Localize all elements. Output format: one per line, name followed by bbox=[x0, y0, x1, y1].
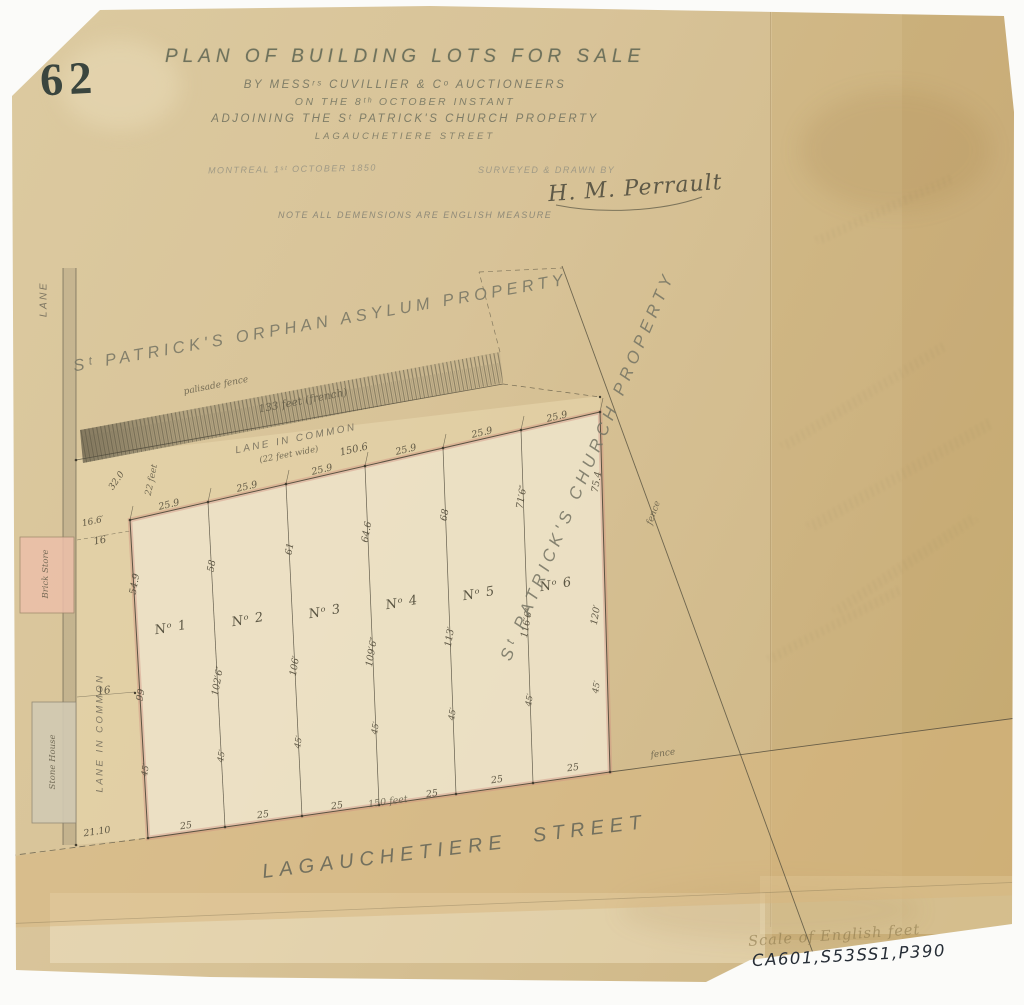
depth-dim: 54.9 bbox=[128, 573, 143, 596]
frontage-dim: 25.9 bbox=[545, 409, 568, 424]
dim-label: 16.6′ bbox=[81, 515, 105, 529]
depth-dim: 45′ bbox=[370, 721, 382, 735]
street-line: LAGAUCHETIERE STREET bbox=[165, 131, 645, 142]
frontage-dim: 25.9 bbox=[235, 479, 258, 494]
depth-dim: 45′ bbox=[447, 707, 459, 721]
lot-number-1: Nᵒ 1 bbox=[154, 618, 189, 638]
auctioneer-line: BY MESSʳˢ CUVILLIER & Cᵒ AUCTIONEERS bbox=[165, 79, 645, 91]
depth-dim: 64.6 bbox=[360, 521, 375, 544]
depth-dim: 45′ bbox=[293, 735, 305, 749]
lot-number-4: Nᵒ 4 bbox=[385, 593, 420, 613]
depth-dim: 109′6″ bbox=[364, 636, 380, 667]
depth-dim: 45′ bbox=[591, 680, 603, 694]
total-top-dim: 150.6 bbox=[339, 441, 369, 458]
depth-dim: 68 bbox=[439, 508, 452, 522]
depth-dim: 120′ bbox=[589, 604, 603, 626]
plan-title: PLAN OF BUILDING LOTS FOR SALE bbox=[165, 46, 645, 68]
fence-label: fence bbox=[650, 747, 676, 760]
lane-label: LANE bbox=[39, 281, 50, 317]
frontage-dim: 25.9 bbox=[157, 497, 180, 512]
lane-in-common-side-label: LANE IN COMMON bbox=[95, 674, 106, 793]
lot-number-5: Nᵒ 5 bbox=[462, 584, 497, 604]
offset-dim: 21.10 bbox=[83, 825, 111, 840]
depth-dim: 106′ bbox=[288, 655, 302, 677]
frontage-dim: 25.9 bbox=[310, 462, 333, 477]
street-frontage-dim: 25 bbox=[256, 809, 270, 822]
page-number: 62 bbox=[39, 51, 100, 107]
depth-dim: 99 bbox=[135, 688, 148, 702]
depth-dim: 45′ bbox=[524, 693, 536, 707]
depth-dim: 102′6″ bbox=[210, 665, 226, 696]
dim-label: 22 feet bbox=[144, 463, 160, 496]
dim-label: 32.0 bbox=[107, 470, 127, 492]
street-frontage-dim: 25 bbox=[425, 788, 439, 801]
frontage-dim: 25.9 bbox=[470, 425, 493, 440]
street-frontage-dim: 25 bbox=[566, 762, 580, 775]
depth-dim: 71′6″ bbox=[515, 484, 530, 509]
street-frontage-dim: 25 bbox=[490, 774, 504, 787]
adjoining-line: ADJOINING THE Sᵗ PATRICK'S CHURCH PROPER… bbox=[165, 113, 645, 125]
date-line: ON THE 8ᵗʰ OCTOBER INSTANT bbox=[165, 96, 645, 108]
scanned-plan-sheet: 25.925.925.9150.625.925.925.9palisade fe… bbox=[0, 0, 1024, 1005]
lot-number-3: Nᵒ 3 bbox=[308, 602, 343, 622]
depth-dim: 61 bbox=[284, 542, 297, 556]
french-feet-label: 133 feet (french) bbox=[258, 387, 349, 416]
street-frontage-dim: 25 bbox=[179, 820, 193, 833]
depth-dim: 113′ bbox=[443, 626, 457, 648]
depth-dim: 45′ bbox=[216, 749, 228, 763]
total-bottom-dim: 150 feet bbox=[368, 794, 409, 810]
depth-dim: 58 bbox=[206, 559, 219, 573]
surveyed-by-label: SURVEYED & DRAWN BY bbox=[478, 165, 615, 175]
measure-note: NOTE ALL DEMENSIONS ARE ENGLISH MEASURE bbox=[278, 210, 548, 220]
fence-label: fence bbox=[645, 500, 663, 527]
frontage-dim: 25.9 bbox=[394, 442, 417, 457]
brick-store-label: Brick Store bbox=[41, 549, 51, 598]
dim-label: 16 bbox=[93, 534, 107, 547]
stone-house-label: Stone House bbox=[48, 735, 58, 790]
street-frontage-dim: 25 bbox=[330, 800, 344, 813]
lot-number-2: Nᵒ 2 bbox=[231, 610, 266, 630]
depth-dim: 45′ bbox=[140, 763, 152, 777]
aged-paper: 25.925.925.9150.625.925.925.9palisade fe… bbox=[0, 0, 1024, 1005]
title-block: PLAN OF BUILDING LOTS FOR SALE BY MESSʳˢ… bbox=[165, 46, 645, 142]
annotation-layer: 25.925.925.9150.625.925.925.9palisade fe… bbox=[0, 0, 1024, 1005]
palisade-fence-label: palisade fence bbox=[183, 375, 249, 397]
